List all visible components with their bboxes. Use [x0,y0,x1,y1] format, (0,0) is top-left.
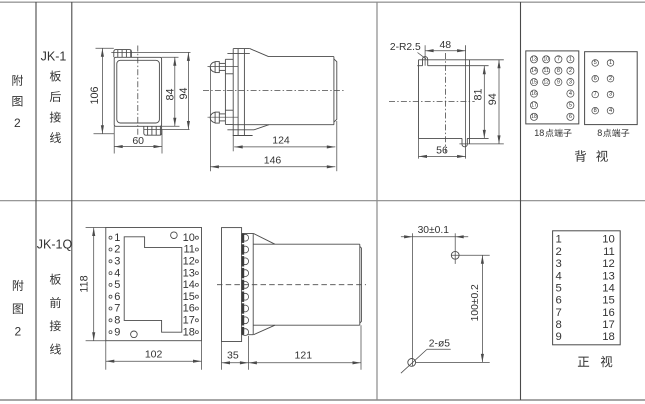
svg-text:1: 1 [569,57,572,63]
svg-text:12: 12 [543,79,549,85]
svg-text:13: 13 [183,267,195,279]
svg-text:8: 8 [114,315,120,327]
svg-text:6: 6 [594,76,597,82]
svg-text:124: 124 [272,135,290,147]
svg-text:9: 9 [557,79,560,85]
svg-text:1: 1 [114,232,120,244]
svg-text:7: 7 [594,92,597,98]
svg-text:10: 10 [183,232,195,244]
svg-text:3: 3 [609,92,612,98]
svg-text:18: 18 [531,114,537,120]
svg-text:1: 1 [556,234,562,246]
svg-text:118: 118 [79,275,91,292]
svg-text:9: 9 [114,326,120,338]
svg-text:2: 2 [609,76,612,82]
svg-text:146: 146 [264,154,282,166]
svg-text:JK-1: JK-1 [41,49,67,63]
svg-text:18: 18 [602,331,615,343]
svg-text:16: 16 [183,303,195,315]
svg-text:6: 6 [114,291,120,303]
svg-text:121: 121 [295,350,313,362]
svg-text:7: 7 [557,57,560,63]
svg-text:2-R2.5: 2-R2.5 [390,42,421,53]
svg-text:12: 12 [183,256,195,268]
svg-text:17: 17 [531,102,537,108]
svg-text:8: 8 [556,319,562,331]
svg-text:84: 84 [164,88,176,100]
svg-text:56: 56 [436,144,448,156]
svg-text:3: 3 [569,79,572,85]
svg-text:11: 11 [544,68,549,74]
svg-text:102: 102 [145,349,163,361]
svg-text:13: 13 [531,57,537,63]
svg-text:2: 2 [569,68,572,74]
svg-text:1: 1 [609,60,612,66]
svg-text:15: 15 [183,291,195,303]
svg-text:30±0.1: 30±0.1 [418,225,450,236]
svg-text:9: 9 [556,331,562,343]
svg-text:10: 10 [602,234,615,246]
svg-text:2: 2 [15,325,22,339]
svg-text:94: 94 [178,87,190,99]
svg-text:15: 15 [531,79,537,85]
svg-text:94: 94 [487,93,499,105]
svg-text:7: 7 [114,303,120,315]
svg-text:11: 11 [603,246,615,258]
svg-text:8: 8 [594,108,597,114]
svg-text:2-ø5: 2-ø5 [429,339,450,350]
svg-text:81: 81 [472,88,484,100]
svg-text:18: 18 [183,326,195,338]
svg-text:16: 16 [602,307,615,319]
svg-text:6: 6 [569,114,572,120]
svg-text:7: 7 [556,307,562,319]
svg-text:8: 8 [597,128,602,138]
svg-text:3: 3 [114,256,120,268]
svg-text:3: 3 [556,258,562,270]
svg-text:5: 5 [569,102,572,108]
svg-text:17: 17 [183,315,195,327]
svg-text:18: 18 [534,128,544,138]
svg-text:10: 10 [543,57,549,63]
svg-text:12: 12 [602,258,615,270]
svg-text:6: 6 [556,295,562,307]
svg-text:8: 8 [557,68,560,74]
svg-text:4: 4 [609,108,612,114]
svg-text:100±0.2: 100±0.2 [470,284,481,321]
svg-text:4: 4 [569,91,572,97]
svg-text:60: 60 [132,135,144,147]
svg-text:JK-1Q: JK-1Q [37,238,73,252]
svg-text:106: 106 [89,86,101,104]
svg-text:5: 5 [114,279,120,291]
svg-text:13: 13 [602,270,615,282]
svg-text:4: 4 [556,270,562,282]
svg-text:2: 2 [556,246,562,258]
svg-text:14: 14 [531,68,537,74]
svg-text:15: 15 [602,295,615,307]
svg-text:14: 14 [602,282,615,294]
svg-text:2: 2 [114,244,120,256]
svg-text:4: 4 [114,267,120,279]
svg-text:48: 48 [439,39,451,51]
svg-text:35: 35 [227,350,239,362]
svg-text:5: 5 [556,282,562,294]
svg-text:11: 11 [183,244,194,256]
svg-text:16: 16 [531,91,537,97]
svg-text:14: 14 [183,279,195,291]
svg-text:17: 17 [602,319,615,331]
svg-text:2: 2 [14,116,21,130]
svg-text:5: 5 [594,60,597,66]
